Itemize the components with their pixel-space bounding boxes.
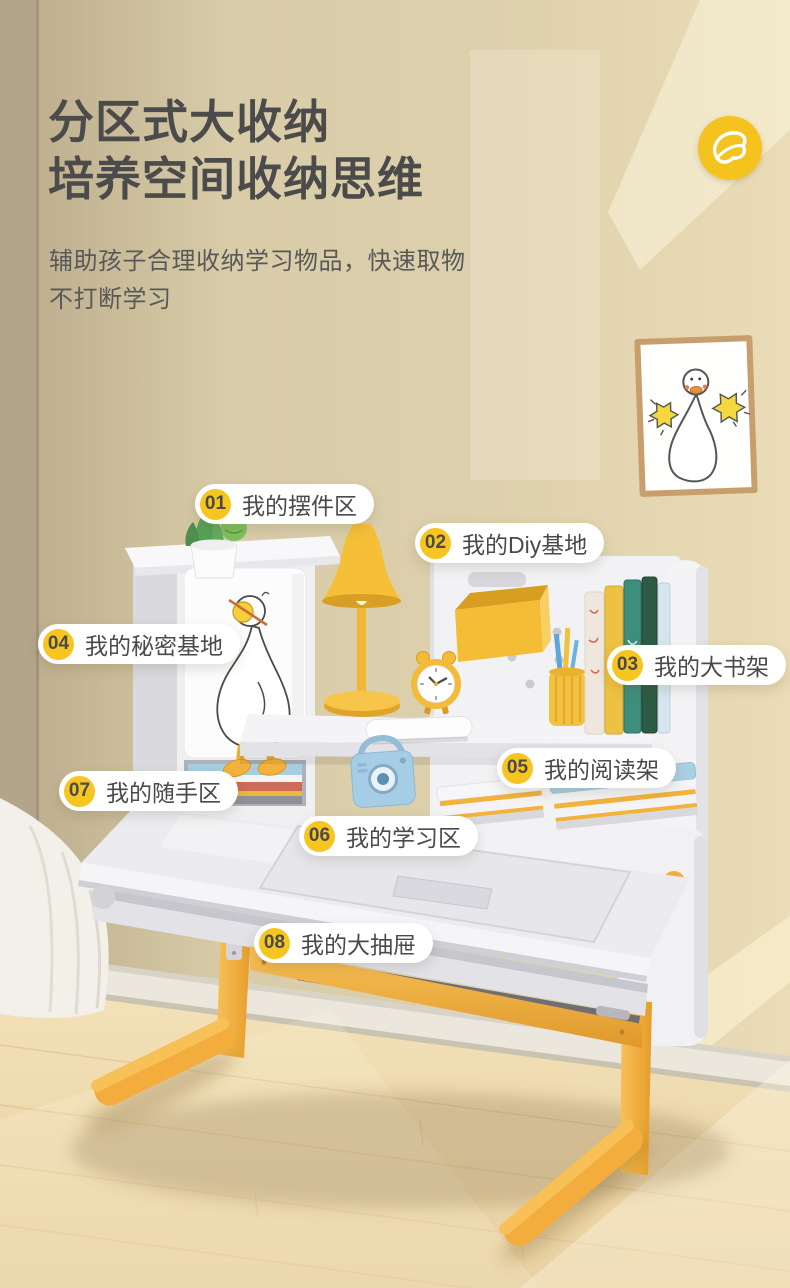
callout-diy-base: 02 我的Diy基地 [415, 523, 604, 563]
callout-number-badge: 04 [43, 629, 74, 660]
callout-number-badge: 07 [64, 776, 95, 807]
callout-label: 我的学习区 [346, 819, 461, 853]
callout-study-area: 06 我的学习区 [299, 816, 478, 856]
callout-number-badge: 05 [502, 753, 533, 784]
subtitle-line-1: 辅助孩子合理收纳学习物品，快速取物 [49, 243, 466, 281]
callout-number-badge: 03 [612, 650, 643, 681]
callout-big-drawer: 08 我的大抽屉 [254, 923, 433, 963]
storage-box [455, 585, 551, 662]
callout-label: 我的Diy基地 [462, 526, 587, 560]
callout-label: 我的大书架 [654, 648, 769, 682]
page-title: 分区式大收纳 培养空间收纳思维 [48, 94, 424, 208]
callout-label: 我的大抽屉 [301, 926, 416, 960]
callout-label: 我的阅读架 [544, 751, 659, 785]
callout-secret-base: 04 我的秘密基地 [38, 624, 240, 664]
callout-big-bookshelf: 03 我的大书架 [607, 645, 786, 685]
callout-number-badge: 08 [259, 928, 290, 959]
callout-reading-rack: 05 我的阅读架 [497, 748, 676, 788]
callout-label: 我的秘密基地 [85, 627, 223, 661]
subtitle-line-2: 不打断学习 [49, 281, 466, 319]
brand-logo [698, 116, 762, 180]
callout-label: 我的摆件区 [242, 487, 357, 521]
callout-number-badge: 01 [200, 489, 231, 520]
callout-number-badge: 02 [420, 528, 451, 559]
duck-foot-icon [708, 126, 752, 170]
title-line-2: 培养空间收纳思维 [48, 151, 424, 208]
callout-number-badge: 06 [304, 821, 335, 852]
promo-page: 分区式大收纳 培养空间收纳思维 辅助孩子合理收纳学习物品，快速取物 不打断学习 … [0, 0, 790, 1288]
callout-label: 我的随手区 [106, 774, 221, 808]
title-line-1: 分区式大收纳 [48, 94, 424, 151]
callout-handy-area: 07 我的随手区 [59, 771, 238, 811]
page-subtitle: 辅助孩子合理收纳学习物品，快速取物 不打断学习 [49, 243, 466, 319]
callout-ornament-area: 01 我的摆件区 [195, 484, 374, 524]
wall-art-duck-poster [634, 335, 757, 497]
